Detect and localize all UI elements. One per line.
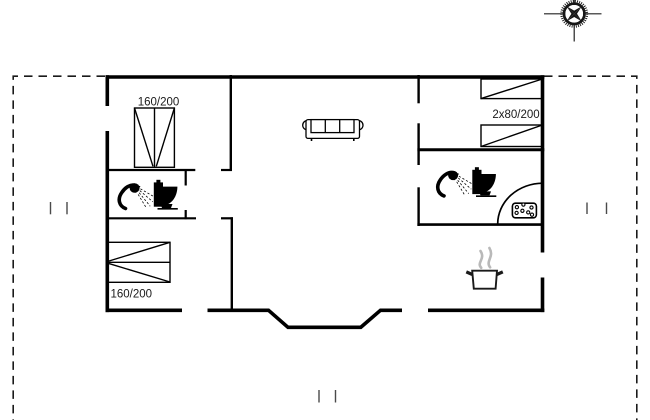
svg-text:2x80/200: 2x80/200 [492,109,539,121]
svg-text:160/200: 160/200 [138,96,180,108]
svg-text:160/200: 160/200 [111,289,153,301]
